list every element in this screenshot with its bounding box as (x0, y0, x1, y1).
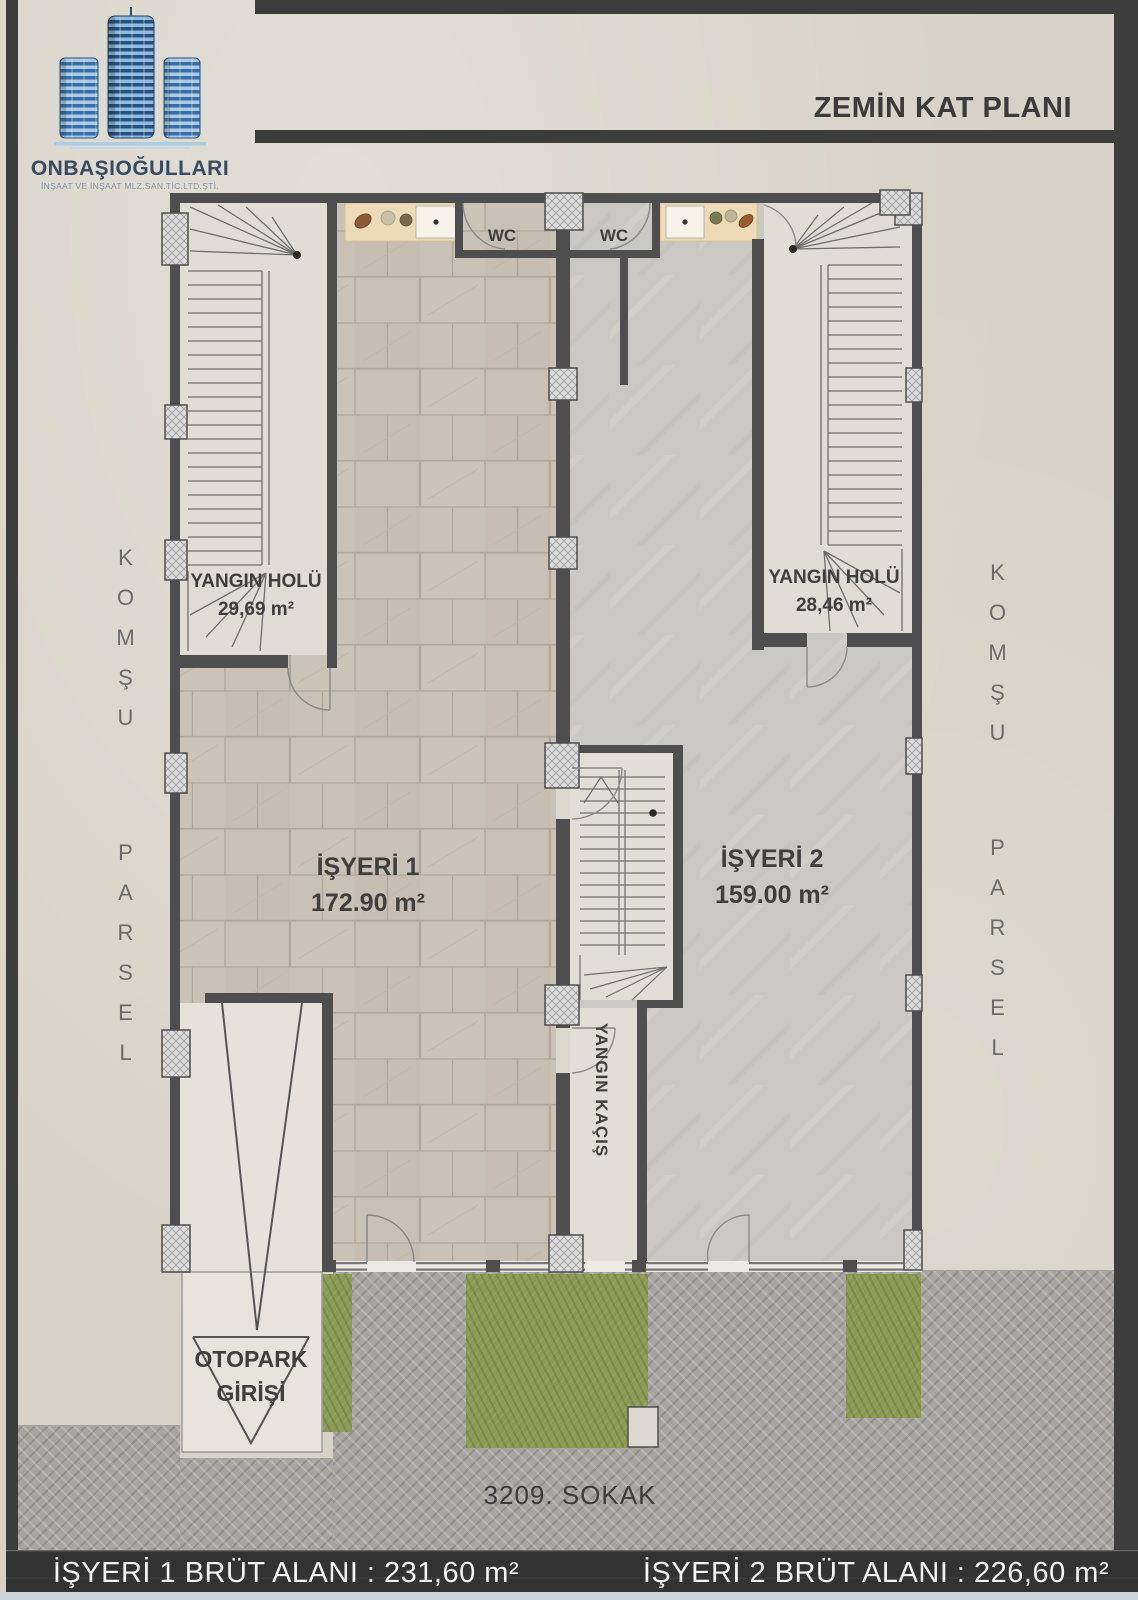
wc-counter-left (345, 203, 460, 241)
room-area-yangin-holu-left: 29,69 m² (218, 599, 294, 620)
fire-escape-label: YANGIN KAÇIŞ (592, 1023, 611, 1157)
room-label-isyeri-1: İŞYERİ 1 (317, 853, 420, 881)
page-title: ZEMİN KAT PLANI (660, 92, 1072, 125)
floor-central-stair (570, 753, 673, 1000)
footer-bottom-strip (0, 1592, 1138, 1600)
wc-label-left: WC (488, 226, 516, 245)
company-logo: ONBAŞIOĞULLARI İNŞAAT VE İNŞAAT MLZ.SAN.… (30, 6, 230, 190)
floor-plan-drawing: YANGIN HOLÜ 29,69 m² YANGIN HOLÜ 28,46 m… (160, 185, 935, 1475)
neighbor-parcel-left-bottom: PARSEL (112, 840, 138, 1080)
room-area-isyeri-2: 159.00 m² (715, 881, 829, 909)
footer-isyeri-1-gross-area: İŞYERİ 1 BRÜT ALANI : 231,60 m² (36, 1557, 536, 1590)
parking-entrance-line1: OTOPARK (195, 1346, 308, 1372)
logo-company-name: ONBAŞIOĞULLARI (30, 157, 230, 181)
street-pavement-left (18, 1425, 180, 1550)
floor-plan-page: 3209. SOKAK KOMŞU PARSEL KOMŞU PARSEL (0, 0, 1138, 1600)
room-label-yangin-holu-left: YANGIN HOLÜ (190, 571, 321, 592)
wc-label-right: WC (600, 226, 628, 245)
wc-counter-right (660, 203, 757, 241)
frame-top-bar (255, 0, 1114, 14)
neighbor-parcel-left-top: KOMŞU (112, 545, 138, 745)
room-label-yangin-holu-right: YANGIN HOLÜ (768, 567, 899, 588)
neighbor-parcel-right-top: KOMŞU (984, 560, 1010, 760)
room-area-isyeri-1: 172.90 m² (311, 889, 425, 917)
parking-entrance-line2: GİRİŞİ (216, 1380, 285, 1406)
title-underline-bar (255, 130, 1114, 143)
logo-tagline: İNŞAAT VE İNŞAAT MLZ.SAN.TİC.LTD.ŞTİ. (30, 181, 230, 191)
footer-isyeri-2-gross-area: İŞYERİ 2 BRÜT ALANI : 226,60 m² (636, 1557, 1116, 1590)
neighbor-parcel-right-bottom: PARSEL (984, 835, 1010, 1075)
frame-right-strip (1114, 0, 1138, 1600)
storefront-facade (322, 1260, 922, 1272)
room-area-yangin-holu-right: 28,46 m² (796, 595, 872, 616)
room-label-isyeri-2: İŞYERİ 2 (721, 845, 824, 873)
floor-parking-ramp (180, 1003, 322, 1272)
frame-left-strip (6, 0, 18, 1600)
buildings-logo-icon (30, 6, 230, 152)
street-name-label: 3209. SOKAK (420, 1480, 720, 1511)
footer-area-bar: İŞYERİ 1 BRÜT ALANI : 231,60 m² İŞYERİ 2… (6, 1550, 1138, 1593)
